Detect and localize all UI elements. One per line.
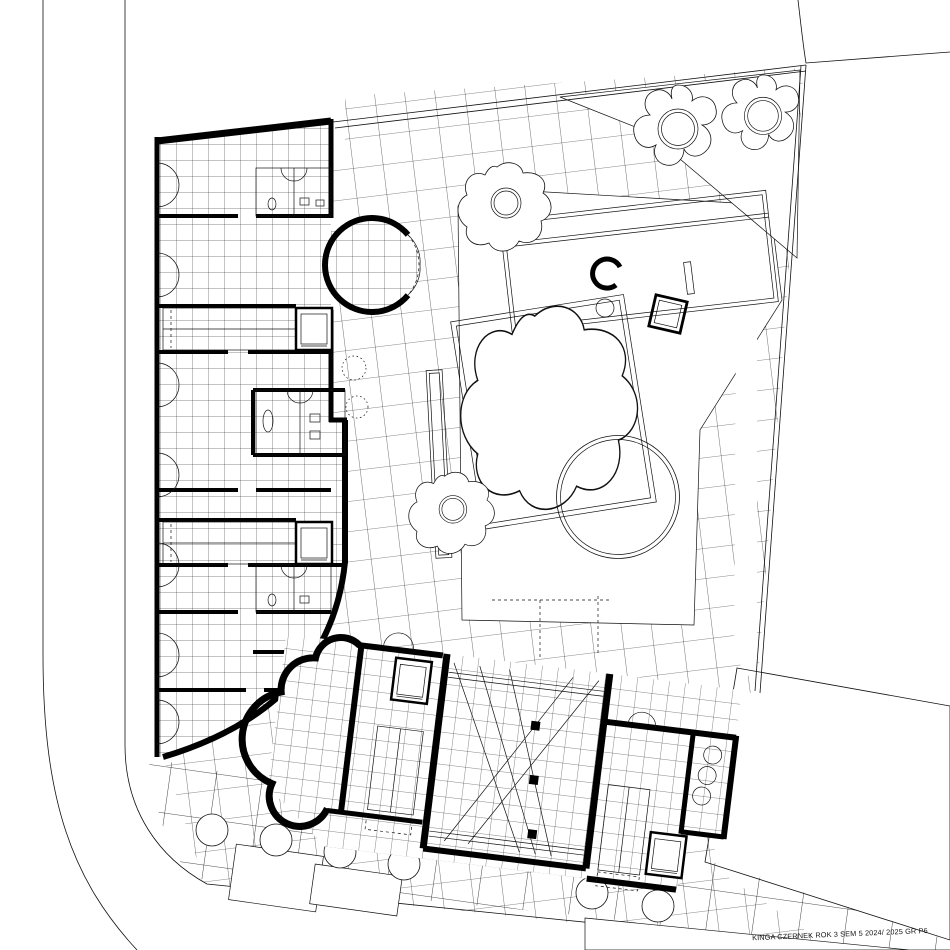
sand-blob	[461, 306, 638, 509]
circular-bay-room	[325, 218, 420, 312]
street-tree-icon	[196, 814, 228, 846]
street-tree-icon	[642, 890, 674, 922]
boundary-margin	[734, 318, 757, 688]
road-edge-curve	[43, 0, 137, 950]
north-east-boundary	[798, 0, 950, 63]
street-tree-icon	[260, 824, 292, 856]
site-plan-drawing	[0, 0, 950, 950]
